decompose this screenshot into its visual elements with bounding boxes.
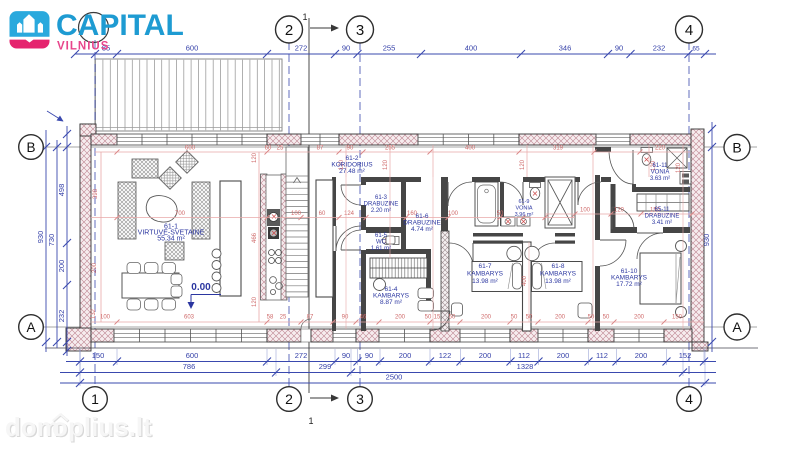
svg-text:3.41 m²: 3.41 m² (652, 220, 672, 226)
svg-text:61-11: 61-11 (653, 163, 669, 169)
svg-text:VILNIUS: VILNIUS (57, 41, 109, 53)
svg-text:152: 152 (679, 351, 692, 360)
svg-text:100: 100 (448, 211, 459, 217)
svg-text:61-5: 61-5 (375, 233, 388, 239)
svg-text:2500: 2500 (386, 373, 403, 382)
svg-text:299: 299 (319, 362, 332, 371)
svg-text:120: 120 (676, 162, 682, 173)
svg-text:50: 50 (497, 211, 504, 217)
svg-text:87: 87 (317, 146, 324, 152)
svg-text:930: 930 (36, 231, 45, 244)
svg-text:50: 50 (526, 315, 533, 321)
svg-text:55.34 m²: 55.34 m² (157, 236, 185, 243)
svg-text:466: 466 (252, 232, 258, 243)
svg-text:603: 603 (184, 315, 195, 321)
svg-text:4: 4 (685, 391, 693, 407)
svg-text:120: 120 (383, 159, 389, 170)
svg-text:498: 498 (57, 184, 66, 197)
svg-text:232: 232 (57, 310, 66, 323)
svg-text:61-7: 61-7 (478, 263, 491, 270)
svg-text:B: B (732, 140, 741, 156)
svg-text:WC: WC (376, 240, 387, 246)
svg-text:1.61 m²: 1.61 m² (371, 246, 391, 252)
svg-text:60: 60 (265, 146, 272, 152)
svg-text:KAMBARYS: KAMBARYS (540, 271, 577, 278)
svg-text:346: 346 (559, 44, 572, 53)
svg-text:KAMBARYS: KAMBARYS (467, 271, 504, 278)
svg-text:2: 2 (285, 22, 293, 39)
svg-text:232: 232 (653, 44, 666, 53)
svg-text:272: 272 (295, 351, 308, 360)
svg-text:100: 100 (580, 208, 591, 214)
svg-text:3.96 m²: 3.96 m² (515, 212, 534, 218)
svg-text:90: 90 (615, 44, 623, 53)
svg-text:200: 200 (92, 262, 98, 273)
svg-text:700: 700 (175, 211, 186, 217)
svg-text:1: 1 (302, 12, 307, 22)
svg-text:3: 3 (356, 22, 364, 39)
svg-text:112: 112 (596, 351, 608, 360)
svg-text:61-3: 61-3 (375, 195, 388, 201)
svg-text:90: 90 (342, 315, 349, 321)
svg-text:61-8: 61-8 (551, 263, 564, 270)
svg-text:B: B (26, 140, 35, 155)
svg-text:50: 50 (511, 315, 518, 321)
svg-text:132: 132 (91, 308, 97, 319)
svg-text:255: 255 (383, 44, 396, 53)
svg-text:200: 200 (395, 315, 406, 321)
svg-text:786: 786 (183, 362, 196, 371)
svg-text:2: 2 (285, 391, 293, 407)
svg-text:87: 87 (307, 315, 314, 321)
svg-text:4.74 m²: 4.74 m² (411, 226, 434, 233)
svg-text:120: 120 (252, 152, 258, 163)
svg-text:DRABUZINE: DRABUZINE (364, 202, 399, 208)
svg-text:400: 400 (522, 275, 528, 286)
svg-text:100: 100 (291, 211, 302, 217)
svg-text:1: 1 (91, 391, 99, 407)
svg-text:2.20 m²: 2.20 m² (371, 208, 391, 214)
svg-text:319: 319 (553, 146, 564, 152)
svg-text:A: A (732, 319, 742, 335)
svg-text:150: 150 (672, 315, 683, 321)
svg-text:46: 46 (360, 315, 367, 321)
svg-text:50: 50 (603, 315, 610, 321)
svg-text:200: 200 (555, 315, 566, 321)
svg-text:60: 60 (319, 211, 326, 217)
svg-text:930: 930 (702, 234, 711, 247)
svg-text:90: 90 (347, 146, 354, 152)
svg-text:13.98 m²: 13.98 m² (545, 278, 571, 285)
svg-text:600: 600 (186, 44, 199, 53)
svg-text:25: 25 (277, 146, 284, 152)
svg-text:200: 200 (399, 351, 412, 360)
svg-text:150: 150 (92, 351, 105, 360)
svg-text:272: 272 (295, 44, 308, 53)
svg-text:124: 124 (344, 211, 355, 217)
svg-text:120: 120 (252, 296, 258, 307)
svg-text:17.72 m²: 17.72 m² (616, 281, 642, 288)
svg-text:4: 4 (685, 22, 693, 39)
svg-text:200: 200 (635, 351, 648, 360)
svg-text:122: 122 (439, 351, 452, 360)
svg-text:A: A (26, 320, 35, 335)
svg-text:15: 15 (434, 315, 441, 321)
svg-text:90: 90 (342, 351, 350, 360)
svg-text:600: 600 (185, 146, 196, 152)
svg-text:90: 90 (365, 351, 373, 360)
svg-text:CAPITAL: CAPITAL (56, 9, 184, 42)
svg-text:400: 400 (465, 44, 478, 53)
svg-text:112: 112 (518, 351, 530, 360)
svg-text:398: 398 (93, 188, 99, 199)
svg-text:DRABUZINE: DRABUZINE (645, 214, 680, 220)
svg-text:0.00: 0.00 (191, 282, 211, 293)
svg-text:plius.lt: plius.lt (68, 412, 152, 442)
svg-text:200: 200 (479, 351, 492, 360)
svg-text:3.63 m²: 3.63 m² (650, 176, 670, 182)
svg-text:65: 65 (692, 46, 700, 53)
svg-text:100: 100 (100, 315, 111, 321)
svg-text:25: 25 (280, 315, 287, 321)
svg-text:27.48 m²: 27.48 m² (339, 168, 365, 175)
svg-text:200: 200 (57, 260, 66, 273)
svg-text:220: 220 (655, 146, 666, 152)
svg-text:90: 90 (342, 44, 350, 53)
svg-text:200: 200 (481, 315, 492, 321)
svg-text:VONIA: VONIA (515, 206, 532, 212)
svg-text:8.87 m²: 8.87 m² (380, 299, 403, 306)
svg-text:50: 50 (449, 315, 456, 321)
svg-text:730: 730 (47, 234, 56, 247)
svg-text:200: 200 (634, 315, 645, 321)
svg-text:50: 50 (425, 315, 432, 321)
svg-text:61-9: 61-9 (518, 199, 529, 205)
svg-text:VONIA: VONIA (651, 170, 670, 176)
svg-text:120: 120 (520, 159, 526, 170)
svg-text:120: 120 (614, 208, 625, 214)
svg-text:13.98 m²: 13.98 m² (472, 278, 498, 285)
svg-text:600: 600 (186, 351, 199, 360)
svg-text:1328: 1328 (517, 362, 534, 371)
svg-text:65-11: 65-11 (655, 207, 671, 213)
svg-text:3: 3 (356, 391, 364, 407)
svg-text:400: 400 (465, 146, 476, 152)
svg-text:1: 1 (308, 416, 313, 426)
svg-text:200: 200 (557, 351, 570, 360)
svg-text:50: 50 (588, 315, 595, 321)
svg-text:58: 58 (267, 315, 274, 321)
